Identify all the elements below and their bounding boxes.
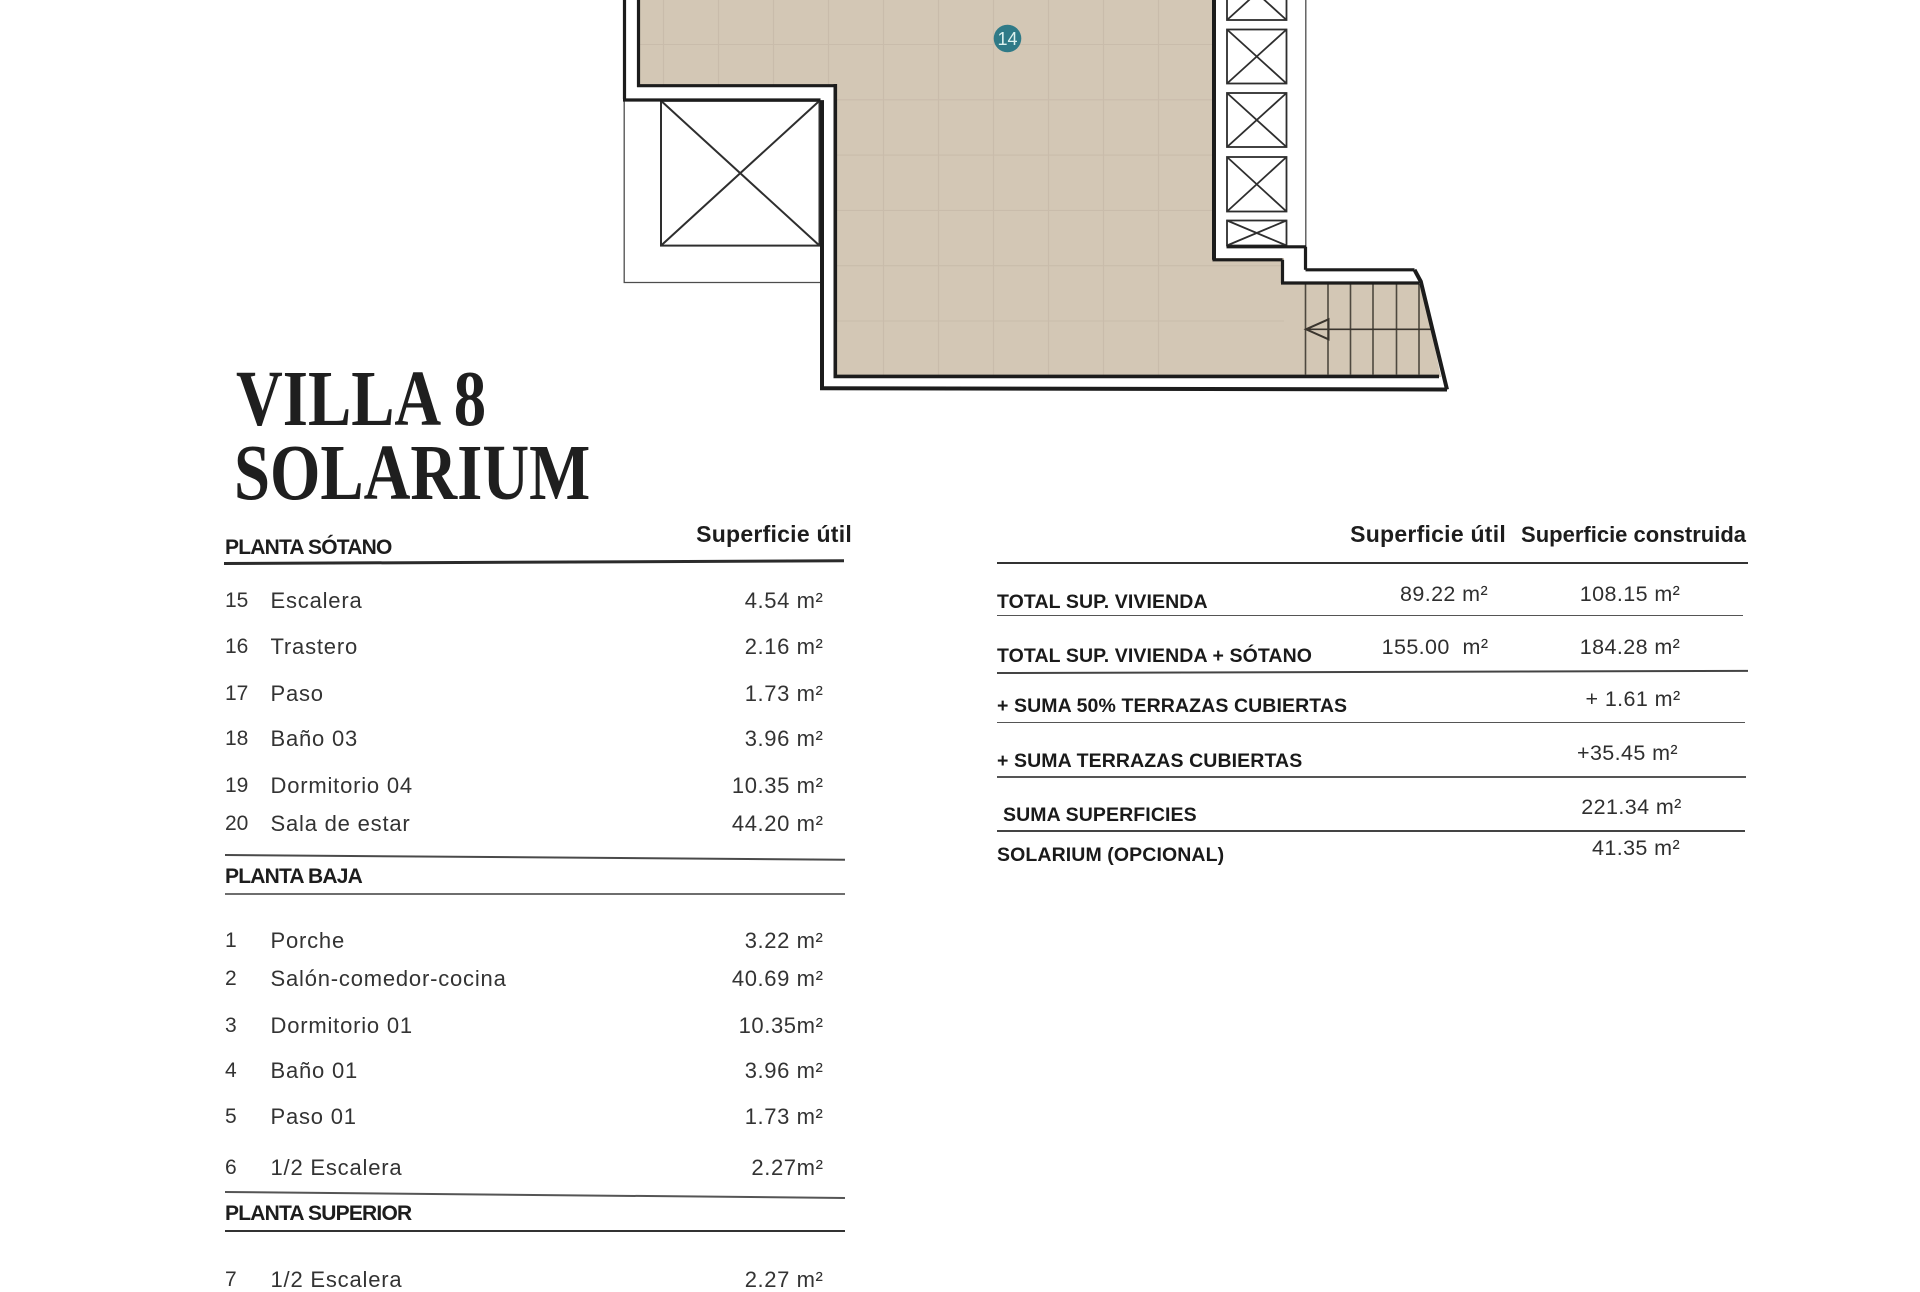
svg-text:14: 14 xyxy=(997,29,1017,49)
